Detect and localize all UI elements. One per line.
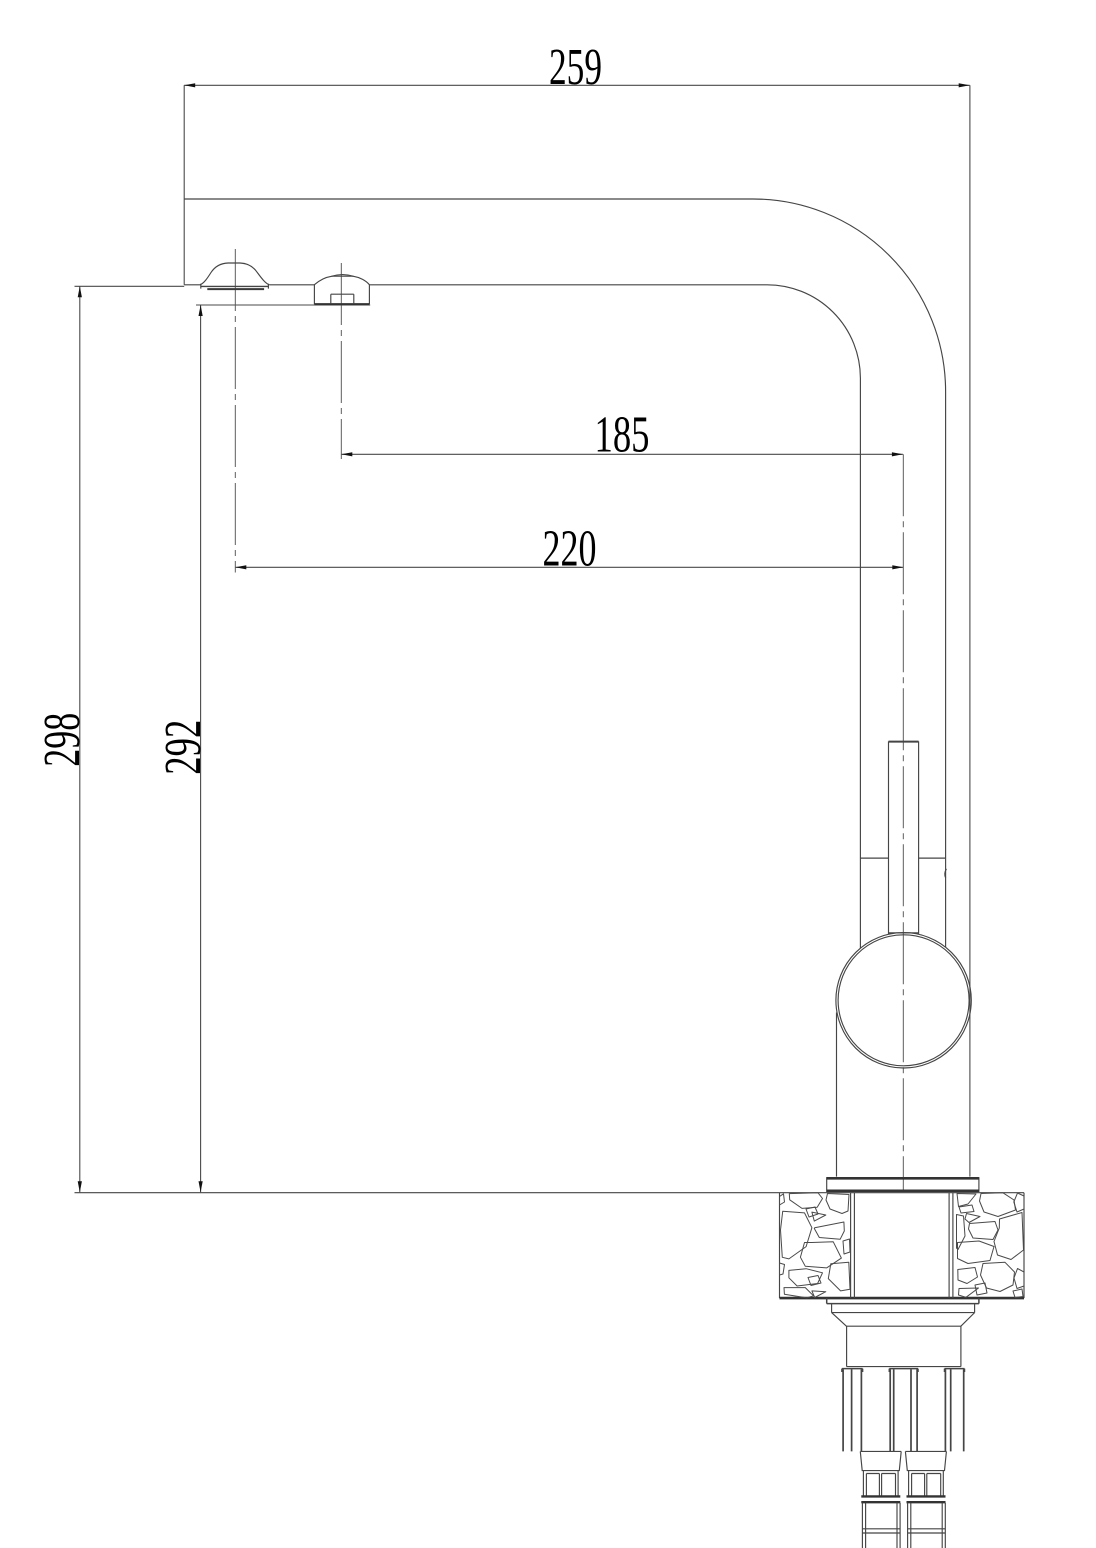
svg-text:259: 259 [549,39,602,96]
svg-text:292: 292 [155,720,212,775]
svg-text:185: 185 [595,406,650,463]
svg-text:298: 298 [34,713,91,767]
svg-text:220: 220 [543,520,597,577]
